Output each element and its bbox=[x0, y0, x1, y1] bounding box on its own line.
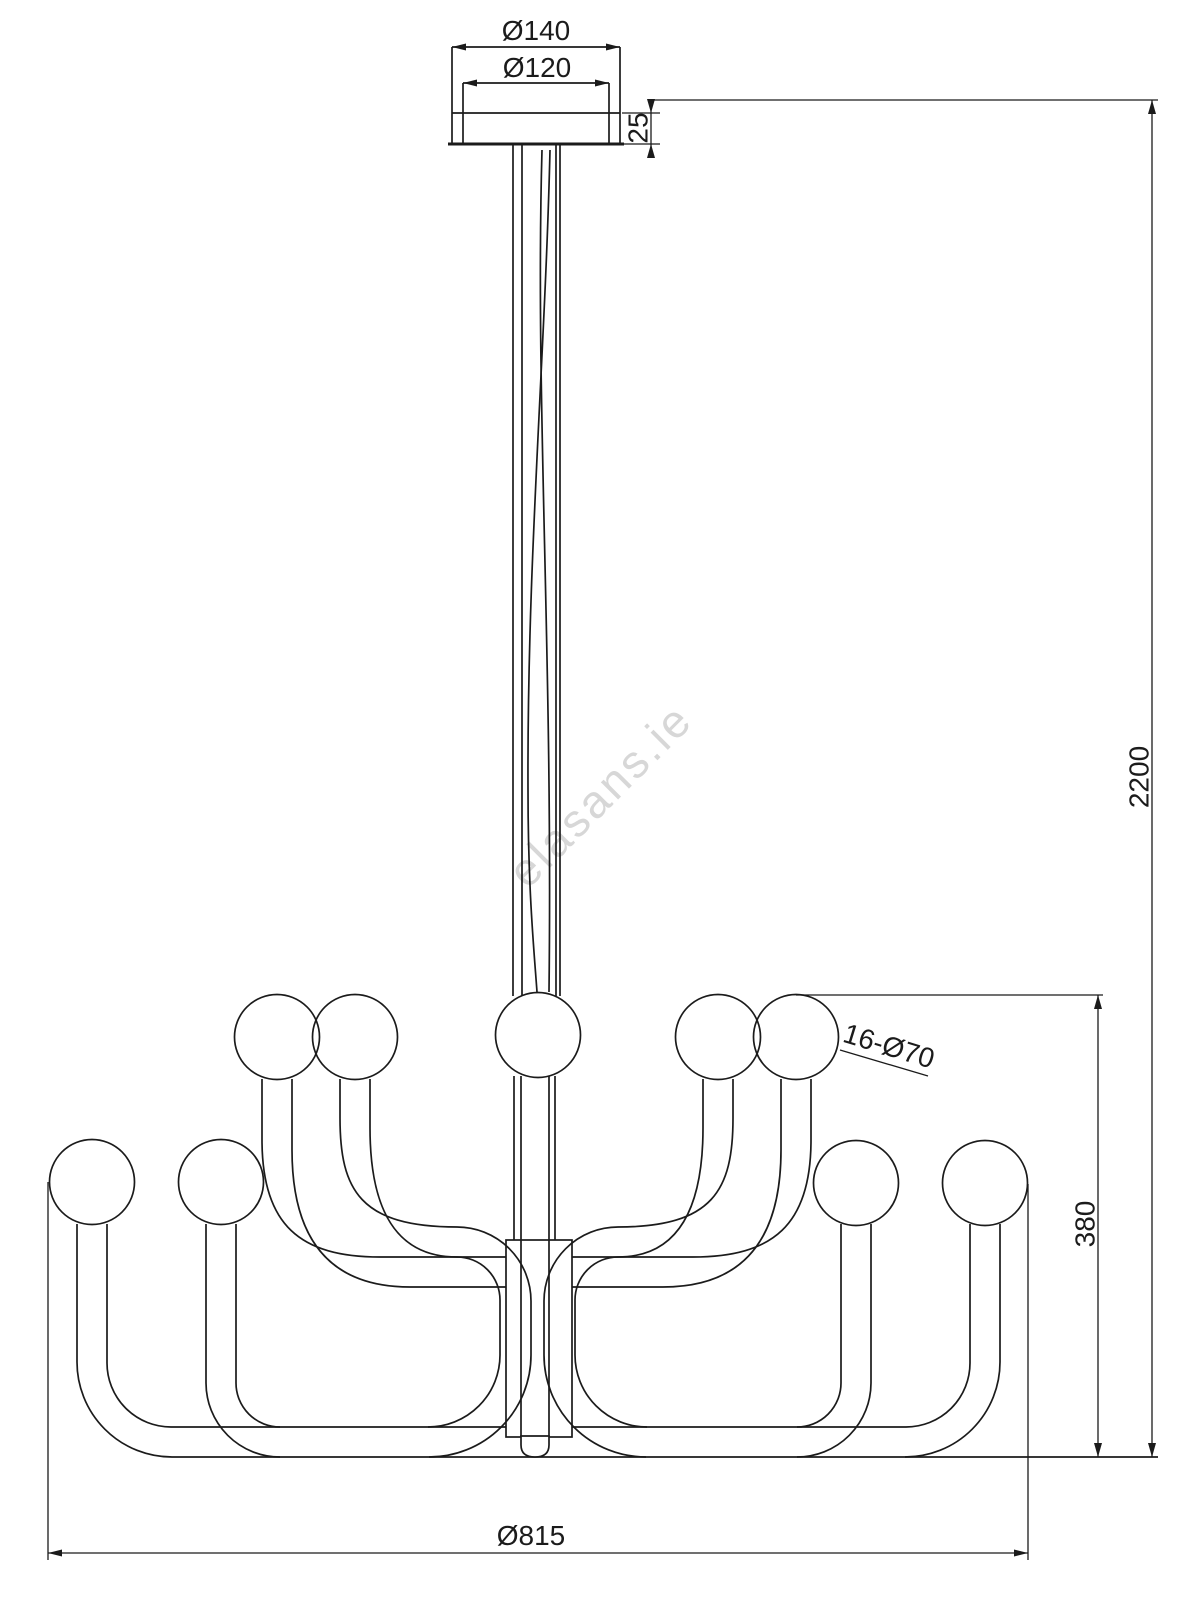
chandelier-body bbox=[50, 47, 1159, 1457]
arm-left-second bbox=[206, 1224, 280, 1457]
arm-right-outer bbox=[905, 1224, 1000, 1457]
dim-label-canopy-inner: Ø120 bbox=[503, 52, 572, 83]
chandelier-line-drawing: elasans.ie bbox=[0, 0, 1203, 1600]
dim-label-canopy-outer: Ø140 bbox=[502, 15, 571, 46]
bulb bbox=[313, 995, 398, 1080]
dim-canopy-inner-diameter: Ø120 bbox=[463, 52, 609, 87]
dim-bulb-callout: 16-Ø70 bbox=[840, 1018, 938, 1076]
bulb bbox=[754, 995, 839, 1080]
arm-right-second bbox=[797, 1224, 871, 1457]
dim-total-height: 2200 bbox=[651, 100, 1158, 1457]
bulb bbox=[943, 1141, 1028, 1226]
arm-left-upper-outer bbox=[262, 1079, 506, 1287]
dim-canopy-outer-diameter: Ø140 bbox=[452, 15, 620, 51]
bulb bbox=[814, 1141, 899, 1226]
arm-left-outer bbox=[77, 1224, 172, 1457]
arm-horizontal-runs bbox=[171, 1427, 1158, 1457]
bulb bbox=[235, 995, 320, 1080]
dim-label-rim-height: 25 bbox=[623, 112, 654, 143]
center-rod-lower bbox=[514, 1076, 555, 1437]
arm-left-upper-inner-loop bbox=[340, 1079, 531, 1457]
dim-body-height: 380 bbox=[796, 995, 1103, 1457]
dim-canopy-rim-height: 25 bbox=[622, 99, 660, 158]
bulb bbox=[50, 1140, 135, 1225]
rod-end-cap bbox=[521, 1436, 549, 1457]
bulb bbox=[179, 1140, 264, 1225]
dim-body-diameter: Ø815 bbox=[48, 1182, 1028, 1560]
dim-label-body-diameter: Ø815 bbox=[497, 1520, 566, 1551]
arm-right-upper-outer bbox=[572, 1079, 811, 1287]
dim-label-bulb-callout: 16-Ø70 bbox=[840, 1018, 938, 1075]
bulb-center bbox=[496, 993, 581, 1078]
dim-label-body-height: 380 bbox=[1070, 1201, 1101, 1248]
technical-drawing-page: elasans.ie bbox=[0, 0, 1203, 1600]
dim-label-total-height: 2200 bbox=[1124, 746, 1155, 808]
bulb bbox=[676, 995, 761, 1080]
